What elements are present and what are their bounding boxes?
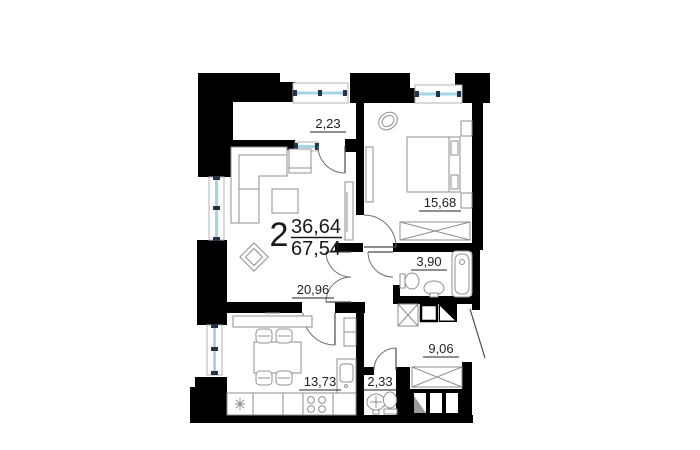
nightstand [461, 193, 472, 208]
wall [472, 103, 483, 250]
side-table [240, 243, 268, 271]
wall [462, 362, 472, 423]
dining-table [254, 342, 301, 373]
wall [407, 88, 415, 103]
wall [222, 302, 302, 313]
label-hallway-area: 9,06 [428, 341, 453, 356]
wall [190, 387, 195, 423]
nightstand [461, 121, 472, 136]
pillow [451, 175, 458, 189]
label-kitchen-area: 13,73 [304, 374, 337, 389]
door-loggia [318, 146, 345, 173]
coffee-table [272, 189, 298, 213]
furniture-toilet [367, 392, 397, 414]
wall [335, 302, 365, 313]
apartment-summary: 2 36,64 67,54 [270, 216, 342, 260]
door-bedroom [364, 215, 396, 247]
living-area-value: 36,64 [291, 216, 341, 238]
wall [345, 139, 357, 152]
floor-plan-page: 2,23 15,68 3,90 20,96 9,06 13,73 2,33 2 … [0, 0, 700, 450]
plant [375, 109, 401, 134]
wall [195, 377, 227, 423]
total-area-value: 67,54 [291, 238, 341, 260]
armchair [289, 149, 311, 173]
wall [356, 103, 364, 215]
closet-cells [414, 393, 458, 413]
wall [350, 73, 410, 103]
pillow [451, 141, 458, 155]
desk [366, 147, 373, 202]
label-living-room-area: 20,96 [297, 282, 330, 297]
door-entrance [470, 309, 485, 358]
wall [356, 313, 364, 415]
floor-plan-canvas: 2,23 15,68 3,90 20,96 9,06 13,73 2,33 2 … [0, 0, 700, 450]
furniture-kitchen [227, 313, 356, 415]
label-bedroom-area: 15,68 [424, 195, 457, 210]
door-toilet [374, 348, 396, 370]
toilet-wc [384, 392, 398, 414]
shaft-boxes [398, 304, 457, 326]
wall [396, 367, 410, 415]
tv-stand [345, 182, 353, 240]
wardrobe-hallway [412, 367, 462, 387]
rooms-count: 2 [270, 216, 289, 254]
sideboard [233, 316, 312, 327]
kitchen-counter [227, 393, 356, 415]
door-bathroom [368, 252, 393, 277]
toilet-bathroom [400, 273, 419, 289]
fridge-symbol [235, 398, 245, 410]
label-loggia-area: 2,23 [315, 116, 340, 131]
label-toilet-area: 2,33 [367, 374, 392, 389]
wardrobe-bedroom [400, 222, 470, 240]
wall [198, 73, 280, 102]
wall [200, 150, 225, 177]
label-bathroom-area: 3,90 [416, 254, 441, 269]
